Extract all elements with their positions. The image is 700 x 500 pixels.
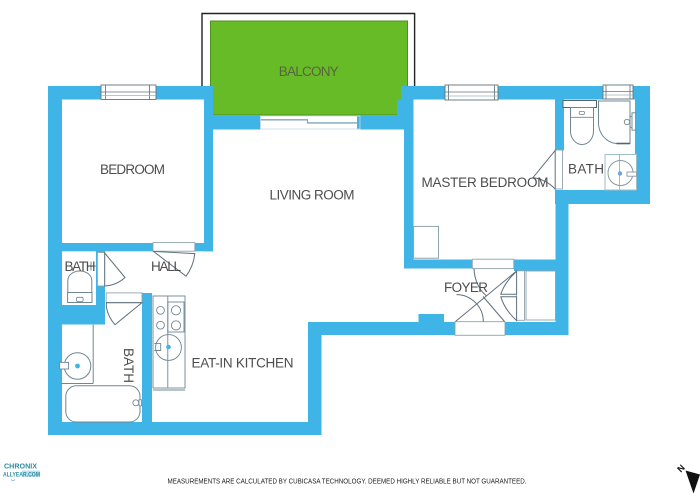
svg-text:HALL: HALL xyxy=(151,259,181,274)
svg-text:MEASUREMENTS ARE CALCULATED BY: MEASUREMENTS ARE CALCULATED BY CUBICASA … xyxy=(168,476,527,485)
svg-text:LIVING ROOM: LIVING ROOM xyxy=(270,187,355,202)
svg-text:BEDROOM: BEDROOM xyxy=(100,162,165,177)
svg-text:BALCONY: BALCONY xyxy=(279,64,339,79)
svg-text:FOYER: FOYER xyxy=(444,280,488,295)
svg-text:BATH: BATH xyxy=(65,259,96,274)
svg-text:MASTER BEDROOM: MASTER BEDROOM xyxy=(422,175,549,190)
svg-text:BATH: BATH xyxy=(568,161,604,176)
svg-text:ALLYEAR.COM: ALLYEAR.COM xyxy=(3,471,40,478)
svg-text:BATH: BATH xyxy=(121,348,136,383)
svg-text:EAT-IN KITCHEN: EAT-IN KITCHEN xyxy=(192,355,294,370)
svg-text:CHRONIX: CHRONIX xyxy=(4,464,37,471)
